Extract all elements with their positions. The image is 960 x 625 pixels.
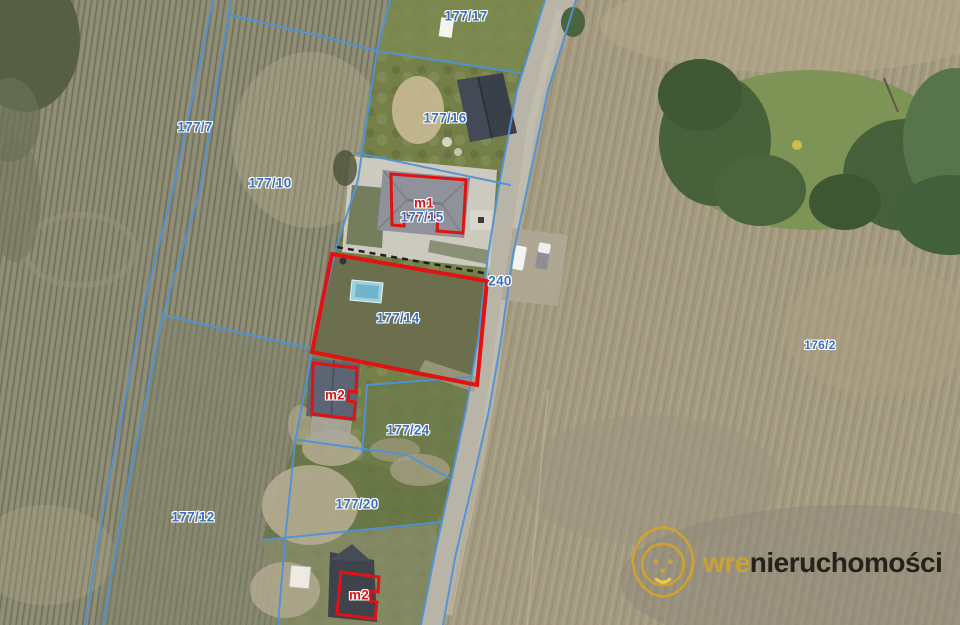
watermark-logo: wrenieruchomości	[626, 524, 942, 602]
marker-m2-lower: m2	[349, 588, 369, 603]
parcel-label-176-2: 176/2	[804, 338, 836, 352]
parcel-label-177-17: 177/17	[444, 9, 487, 24]
parcel-label-177-24: 177/24	[386, 423, 429, 438]
parcel-label-177-7: 177/7	[177, 120, 212, 135]
watermark-prefix: wre	[703, 547, 750, 578]
parcel-label-177-12: 177/12	[171, 510, 214, 525]
aerial-cadastral-map[interactable]: 177/7 177/10 177/12 177/14 177/15 177/16…	[0, 0, 960, 625]
parcel-label-177-15: 177/15	[400, 210, 443, 225]
parcel-label-177-20: 177/20	[335, 497, 378, 512]
parcel-label-177-16: 177/16	[423, 111, 466, 126]
lion-icon	[626, 524, 700, 602]
marker-m1: m1	[414, 196, 434, 211]
parcel-label-177-14: 177/14	[376, 311, 419, 326]
watermark-name: nieruchomości	[750, 547, 943, 578]
watermark-text: wrenieruchomości	[703, 547, 942, 579]
marker-m2-upper: m2	[325, 388, 345, 403]
road-label-240: 240	[488, 274, 511, 289]
parcel-label-177-10: 177/10	[248, 176, 291, 191]
